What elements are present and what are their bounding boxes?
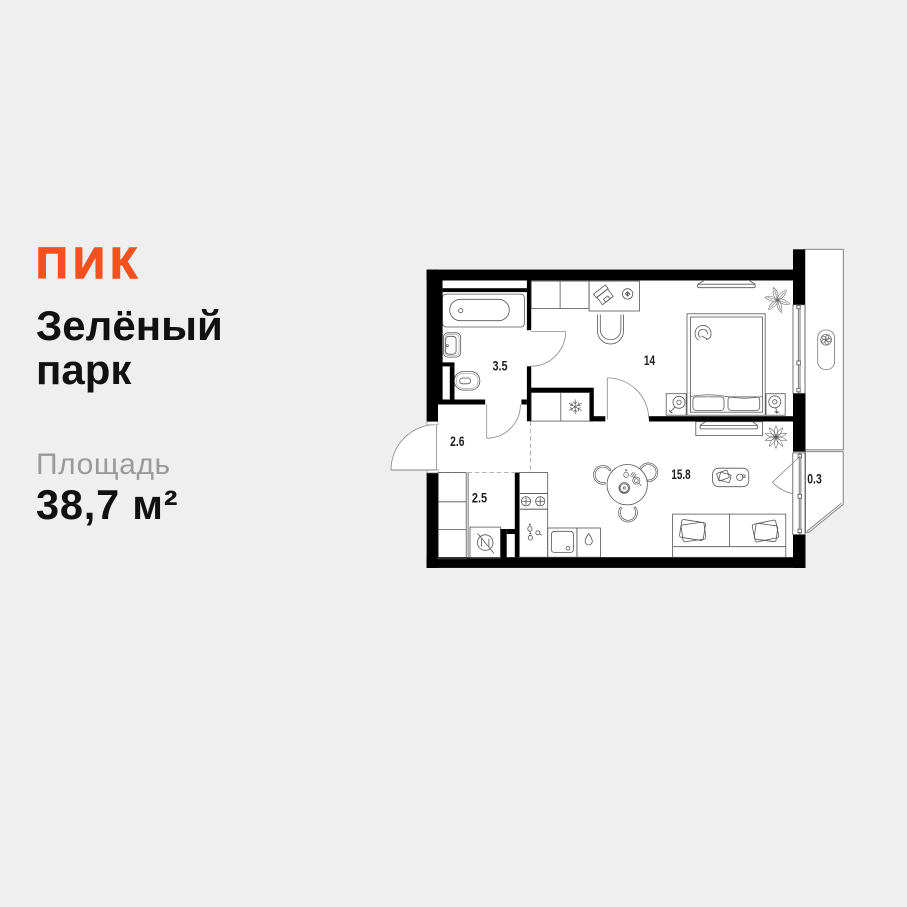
- svg-text:0.3: 0.3: [807, 472, 822, 487]
- svg-text:3.5: 3.5: [492, 359, 508, 374]
- svg-text:2.6: 2.6: [450, 434, 464, 449]
- svg-text:2.5: 2.5: [472, 491, 488, 506]
- svg-text:14: 14: [644, 353, 656, 368]
- svg-text:15.8: 15.8: [671, 467, 691, 482]
